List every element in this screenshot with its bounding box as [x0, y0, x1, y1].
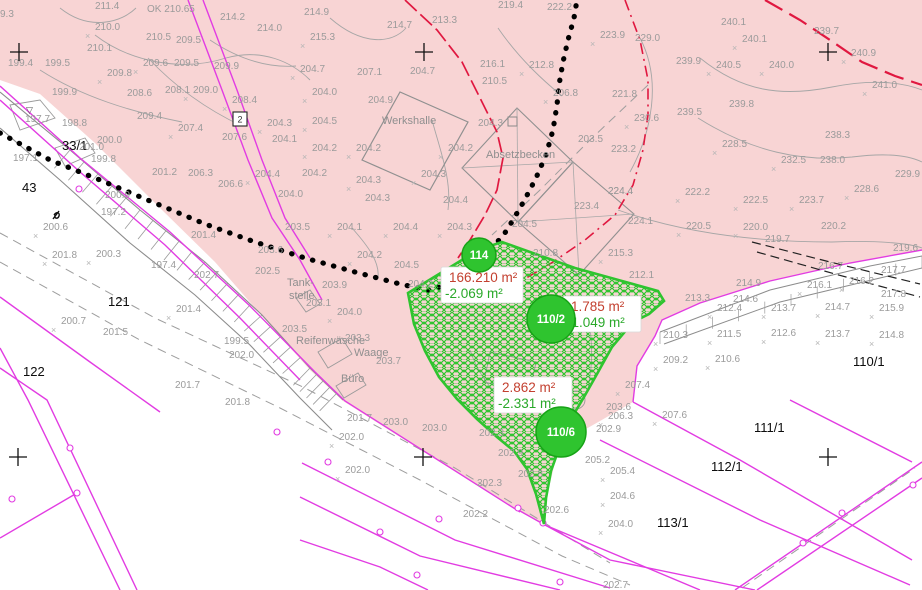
parcel-marker-label: 110/6	[547, 427, 575, 439]
point-cross-mark: ×	[675, 196, 680, 206]
point-cross-mark: ×	[761, 337, 766, 347]
elevation-label: 202.6	[544, 505, 569, 516]
elevation-label: 202.0	[229, 350, 254, 361]
parcel-vertex-point	[557, 579, 563, 585]
elevation-label: 238.0	[820, 155, 845, 166]
elevation-label: 232.5	[781, 155, 806, 166]
elevation-label: 213.7	[771, 303, 796, 314]
elevation-label: 238.3	[825, 130, 850, 141]
map-view: 9.3211.4OK 210.65×210.0214.2214.0210.520…	[0, 0, 922, 590]
elevation-label: 217.7	[881, 265, 906, 276]
point-cross-mark: ×	[839, 285, 844, 295]
point-cross-mark: ×	[624, 122, 629, 132]
elevation-label: 213.3	[432, 15, 457, 26]
elevation-label: 203.0	[422, 423, 447, 434]
point-cross-mark: ×	[761, 312, 766, 322]
parcel-boundary-line	[302, 463, 610, 588]
point-cross-mark: ×	[519, 69, 524, 79]
parcel-vertex-point	[67, 445, 73, 451]
parcel-vertex-point	[800, 540, 806, 546]
point-cross-mark: ×	[598, 420, 603, 430]
elevation-label: 204.2	[357, 250, 382, 261]
point-cross-mark: ×	[257, 127, 262, 137]
elevation-label: 203.0	[383, 417, 408, 428]
elevation-label: 197.1	[13, 153, 38, 164]
elevation-label: 229.9	[895, 169, 920, 180]
elevation-label: 209.5	[174, 58, 199, 69]
parcel-vertex-point	[515, 505, 521, 511]
point-cross-mark: ×	[438, 152, 443, 162]
elevation-label: 223.7	[799, 195, 824, 206]
elevation-label: 228.5	[722, 139, 747, 150]
parcel-number-label: 112/1	[711, 459, 743, 474]
building-label: Werkshalle	[382, 115, 436, 127]
point-cross-mark: ×	[615, 389, 620, 399]
cadastral-map-canvas[interactable]: 9.3211.4OK 210.65×210.0214.2214.0210.520…	[0, 0, 922, 590]
elevation-label: 240.0	[769, 60, 794, 71]
area-delta-label: -1.049 m²	[567, 315, 625, 330]
elevation-label: 205.2	[585, 455, 610, 466]
elevation-label: 219.6	[893, 243, 918, 254]
point-cross-mark: ×	[653, 339, 658, 349]
benchmark-icon: ▽	[26, 105, 33, 115]
elevation-label: 220.2	[821, 221, 846, 232]
elevation-label: 203.5	[282, 324, 307, 335]
point-cross-mark: ×	[869, 312, 874, 322]
elevation-label: 210.3	[663, 330, 688, 341]
point-cross-mark: ×	[598, 528, 603, 538]
elevation-label: 224.1	[628, 216, 653, 227]
parcel-boundary-line	[0, 368, 137, 590]
point-cross-mark: ×	[771, 164, 776, 174]
elevation-label: 200.6	[43, 222, 68, 233]
elevation-label: 201.4	[191, 230, 216, 241]
elevation-label: 213.3	[685, 293, 710, 304]
elevation-label: 203.5	[578, 134, 603, 145]
road-hatch-tick	[320, 394, 337, 411]
parcel-boundary-line	[790, 400, 912, 462]
point-cross-mark: ×	[302, 152, 307, 162]
elevation-label: 204.3	[365, 193, 390, 204]
elevation-label: 201.2	[152, 167, 177, 178]
elevation-label: 204.2	[312, 143, 337, 154]
elevation-label: 199.5	[224, 336, 249, 347]
elevation-label: 197.4	[151, 260, 176, 271]
elevation-label: 212.8	[529, 60, 554, 71]
point-cross-mark: ×	[600, 500, 605, 510]
elevation-label: 214.7	[387, 20, 412, 31]
elevation-label: 203.9	[322, 280, 347, 291]
elevation-label: 241.0	[872, 80, 897, 91]
point-cross-mark: ×	[85, 31, 90, 41]
elevation-label: 205.4	[610, 466, 635, 477]
elevation-label: 204.4	[443, 195, 468, 206]
elevation-label: 204.2	[356, 143, 381, 154]
parcel-boundary-line	[600, 440, 910, 585]
survey-point-icon	[53, 211, 59, 219]
elevation-label: 204.2	[408, 279, 433, 290]
parcel-number-label: 122	[23, 364, 45, 379]
point-cross-mark: ×	[347, 259, 352, 269]
point-cross-mark: ×	[706, 69, 711, 79]
elevation-label: 206.8	[553, 88, 578, 99]
elevation-label: 210.8	[533, 248, 558, 259]
elevation-label: 204.3	[356, 175, 381, 186]
point-cross-mark: ×	[653, 364, 658, 374]
point-cross-mark: ×	[598, 257, 603, 267]
road-hatch-tick	[254, 326, 272, 342]
point-cross-mark: ×	[844, 193, 849, 203]
area-delta-label: -2.331 m²	[498, 396, 556, 411]
point-cross-mark: ×	[759, 69, 764, 79]
elevation-label: 229.0	[635, 33, 660, 44]
point-cross-mark: ×	[712, 148, 717, 158]
elevation-label: 214.0	[257, 23, 282, 34]
elevation-label: 206.6	[218, 179, 243, 190]
elevation-label: 197.2	[101, 207, 126, 218]
elevation-label: 206.3	[188, 168, 213, 179]
elevation-label: 230.6	[634, 113, 659, 124]
elevation-label: 204.4	[393, 222, 418, 233]
parcel-boundary-line	[545, 525, 755, 590]
elevation-label: 202.2	[463, 509, 488, 520]
point-cross-mark: ×	[86, 258, 91, 268]
parcel-vertex-point	[839, 510, 845, 516]
elevation-label: 211.4	[95, 1, 120, 12]
elevation-label: 212.4	[717, 303, 742, 314]
elevation-label: 212.1	[629, 270, 654, 281]
elevation-label: 199.9	[52, 87, 77, 98]
elevation-label: 222.5	[743, 195, 768, 206]
point-cross-mark: ×	[97, 77, 102, 87]
point-cross-mark: ×	[797, 289, 802, 299]
point-cross-mark: ×	[411, 178, 416, 188]
elevation-label: 209.6	[143, 58, 168, 69]
parcel-boundary-line	[757, 478, 922, 590]
elevation-label: 202.7	[194, 270, 219, 281]
elevation-label: 214.8	[879, 330, 904, 341]
elevation-label: 210.1	[87, 43, 112, 54]
elevation-label: 204.0	[278, 189, 303, 200]
elevation-label: 202.8	[518, 469, 543, 480]
elevation-label: 211.5	[717, 329, 742, 340]
elevation-label: 207.6	[222, 132, 247, 143]
point-cross-mark: ×	[51, 325, 56, 335]
elevation-label: 204.5	[312, 116, 337, 127]
elevation-label: 204.3	[267, 118, 292, 129]
elevation-label: 240.1	[742, 34, 767, 45]
point-cross-mark: ×	[346, 184, 351, 194]
elevation-label: OK 210.65	[147, 4, 195, 15]
parcel-boundary-line	[300, 540, 428, 590]
point-cross-mark: ×	[733, 204, 738, 214]
elevation-label: 204.6	[610, 491, 635, 502]
area-value-label: 166.210 m²	[449, 270, 518, 285]
area-delta-label: -2.069 m²	[445, 286, 503, 301]
elevation-label: 208.4	[232, 95, 257, 106]
point-cross-mark: ×	[705, 363, 710, 373]
elevation-label: 204.5	[394, 260, 419, 271]
elevation-label: 201.7	[347, 413, 372, 424]
point-cross-mark: ×	[815, 338, 820, 348]
building-label: Tank-	[287, 277, 314, 289]
elevation-label: 202.9	[498, 448, 523, 459]
point-cross-mark: ×	[329, 441, 334, 451]
point-cross-mark: ×	[732, 43, 737, 53]
elevation-label: 210.0	[95, 22, 120, 33]
elevation-label: 223.4	[574, 201, 599, 212]
elevation-label: 200.9	[105, 190, 130, 201]
parcel-vertex-point	[274, 429, 280, 435]
parcel-number-label: 111/1	[754, 420, 785, 435]
elevation-label: 204.7	[300, 64, 325, 75]
point-cross-mark: ×	[33, 231, 38, 241]
elevation-label: 219.7	[765, 234, 790, 245]
elevation-label: 209.9	[214, 61, 239, 72]
parcel-vertex-point	[377, 529, 383, 535]
elevation-label: 219.4	[498, 0, 523, 11]
elevation-label: 199.8	[91, 154, 116, 165]
parcel-vertex-point	[414, 572, 420, 578]
elevation-label: 217.8	[881, 289, 906, 300]
point-cross-mark: ×	[676, 230, 681, 240]
elevation-label: 220.5	[686, 221, 711, 232]
elevation-label: 204.5	[512, 219, 537, 230]
point-cross-mark: ×	[600, 475, 605, 485]
elevation-label: 204.2	[302, 168, 327, 179]
parcel-vertex-point	[436, 516, 442, 522]
elevation-label: 199.5	[45, 58, 70, 69]
elevation-label: 203.3	[345, 333, 370, 344]
elevation-label: 222.2	[547, 2, 572, 13]
parcel-vertex-point	[74, 490, 80, 496]
point-cross-mark: ×	[543, 97, 548, 107]
road-hatch-tick	[306, 381, 323, 398]
elevation-label: 202.3	[479, 428, 504, 439]
elevation-label: 202.7	[603, 580, 628, 590]
elevation-label: 210.6	[715, 354, 740, 365]
elevation-label: 224.4	[608, 186, 633, 197]
elevation-label: 221.8	[612, 89, 637, 100]
elevation-label: 204.0	[337, 307, 362, 318]
elevation-label: 212.6	[771, 328, 796, 339]
elevation-label: 220.0	[743, 222, 768, 233]
elevation-label: 204.9	[368, 95, 393, 106]
elevation-label: 207.4	[178, 123, 203, 134]
parcel-number-label: 121	[108, 294, 130, 309]
elevation-label: 209.0	[193, 85, 218, 96]
elevation-label: 202.0	[339, 432, 364, 443]
elevation-label: 201.4	[176, 304, 201, 315]
elevation-label: 204.3	[421, 169, 446, 180]
elevation-label: 209.5	[176, 35, 201, 46]
parcel-boundary-line	[0, 297, 160, 412]
point-cross-mark: ×	[302, 96, 307, 106]
point-cross-mark: ×	[300, 41, 305, 51]
elevation-label: 204.3	[478, 118, 503, 129]
elevation-label: 198.8	[62, 118, 87, 129]
point-cross-mark: ×	[815, 311, 820, 321]
elevation-label: 210.5	[146, 32, 171, 43]
elevation-label: 215.3	[310, 32, 335, 43]
parcel-vertex-point	[325, 459, 331, 465]
elevation-label: 216.1	[480, 59, 505, 70]
point-cross-mark: ×	[168, 132, 173, 142]
parcel-number-label: 43	[22, 180, 36, 195]
elevation-label: 214.9	[304, 7, 329, 18]
building-label: Absetzbecken	[486, 149, 555, 161]
grid-cross-icon	[9, 448, 27, 466]
point-cross-mark: ×	[335, 474, 340, 484]
map-symbol-glyph: 2	[237, 115, 242, 125]
point-cross-mark: ×	[383, 231, 388, 241]
elevation-label: 222.2	[685, 187, 710, 198]
elevation-label: 216.1	[807, 280, 832, 291]
elevation-label: 239.8	[729, 99, 754, 110]
point-cross-mark: ×	[166, 313, 171, 323]
elevation-label: 201.8	[52, 250, 77, 261]
elevation-label: 204.4	[255, 169, 280, 180]
point-cross-mark: ×	[841, 57, 846, 67]
elevation-label: 207.4	[625, 380, 650, 391]
elevation-label: 214.7	[825, 302, 850, 313]
elevation-label: 215.9	[879, 303, 904, 314]
elevation-label: 239.7	[814, 26, 839, 37]
building-label: Büro	[341, 373, 364, 385]
elevation-label: 223.9	[600, 30, 625, 41]
elevation-label: 204.2	[448, 143, 473, 154]
elevation-label: 209.8	[107, 68, 132, 79]
parcel-vertex-point	[9, 496, 15, 502]
point-cross-mark: ×	[290, 73, 295, 83]
road-hatch-tick	[313, 387, 330, 404]
point-cross-mark: ×	[327, 316, 332, 326]
elevation-label: 203.7	[376, 356, 401, 367]
point-cross-mark: ×	[222, 104, 227, 114]
elevation-label: 239.5	[677, 107, 702, 118]
elevation-label: 240.9	[851, 48, 876, 59]
point-cross-mark: ×	[707, 338, 712, 348]
elevation-label: 204.0	[608, 519, 633, 530]
point-cross-mark: ×	[183, 94, 188, 104]
elevation-label: 204.1	[337, 222, 362, 233]
elevation-label: 200.3	[96, 249, 121, 260]
point-cross-mark: ×	[42, 259, 47, 269]
road-hatch-tick	[177, 252, 192, 271]
area-value-label: 2.862 m²	[502, 380, 556, 395]
parcel-number-label: 113/1	[657, 515, 689, 530]
parcel-vertex-point	[76, 186, 82, 192]
elevation-label: 208.6	[127, 88, 152, 99]
road-hatch-tick	[234, 304, 250, 322]
elevation-label: 228.6	[854, 184, 879, 195]
road-hatch-tick	[300, 374, 317, 391]
elevation-label: 201.8	[225, 397, 250, 408]
elevation-label: 223.2	[611, 144, 636, 155]
point-cross-mark: ×	[133, 67, 138, 77]
point-cross-mark: ×	[869, 339, 874, 349]
point-cross-mark: ×	[707, 312, 712, 322]
elevation-label: 204.3	[447, 222, 472, 233]
elevation-label: 200.7	[61, 316, 86, 327]
point-cross-mark: ×	[733, 231, 738, 241]
elevation-label: 207.1	[357, 67, 382, 78]
elevation-label: 201.5	[103, 327, 128, 338]
point-cross-mark: ×	[327, 231, 332, 241]
point-cross-mark: ×	[437, 231, 442, 241]
point-cross-mark: ×	[245, 178, 250, 188]
elevation-label: 215.3	[608, 248, 633, 259]
elevation-label: 210.5	[482, 76, 507, 87]
elevation-label: 204.1	[272, 134, 297, 145]
point-cross-mark: ×	[346, 152, 351, 162]
elevation-label: 201.7	[175, 380, 200, 391]
parcel-vertex-point	[910, 482, 916, 488]
grid-cross-icon	[819, 448, 837, 466]
elevation-label: 240.5	[716, 60, 741, 71]
point-cross-mark: ×	[862, 89, 867, 99]
area-value-label: 1.785 m²	[571, 299, 625, 314]
elevation-label: 199.4	[8, 58, 33, 69]
elevation-label: 209.4	[137, 111, 162, 122]
elevation-label: 214.9	[736, 278, 761, 289]
elevation-label: 201.0	[79, 142, 104, 153]
elevation-label: 213.7	[825, 329, 850, 340]
parcel-marker-label: 114	[470, 250, 489, 262]
point-cross-mark: ×	[590, 39, 595, 49]
elevation-label: 197.7	[25, 114, 50, 125]
building-label: stelle	[289, 290, 315, 302]
elevation-label: 206.3	[608, 411, 633, 422]
elevation-label: 204.0	[312, 87, 337, 98]
point-cross-mark: ×	[302, 125, 307, 135]
elevation-label: 204.7	[410, 66, 435, 77]
elevation-label: 203.5	[285, 222, 310, 233]
elevation-label: 202.0	[345, 465, 370, 476]
parcel-marker-label: 110/2	[537, 314, 565, 326]
elevation-label: 202.5	[255, 266, 280, 277]
elevation-label: 203.6	[258, 245, 283, 256]
point-cross-mark: ×	[652, 419, 657, 429]
elevation-label: 240.1	[721, 17, 746, 28]
elevation-label: 216.2	[849, 276, 874, 287]
point-cross-mark: ×	[789, 204, 794, 214]
road-hatch-tick	[244, 315, 262, 331]
elevation-label: 9.3	[0, 9, 14, 20]
parcel-number-label: 110/1	[853, 354, 885, 369]
elevation-label: 209.2	[663, 355, 688, 366]
parcel-boundary-line	[0, 348, 120, 590]
parcel-boundary-line	[735, 462, 922, 590]
elevation-label: 207.6	[662, 410, 687, 421]
elevation-label: 202.3	[477, 478, 502, 489]
elevation-label: 239.9	[676, 56, 701, 67]
elevation-label: 214.2	[220, 12, 245, 23]
terrain-dashed-line	[742, 468, 915, 588]
elevation-label: 216.7	[818, 261, 843, 272]
